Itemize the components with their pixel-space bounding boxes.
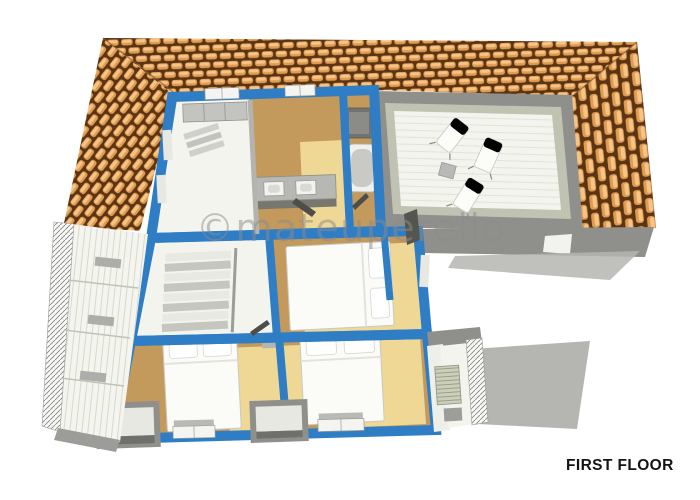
bed-b	[300, 333, 384, 425]
floor-label: FIRST FLOOR	[566, 457, 674, 474]
crate	[444, 408, 463, 422]
shower	[345, 108, 373, 138]
bed-a	[163, 336, 242, 432]
window	[162, 130, 173, 160]
bed-middle	[286, 241, 394, 330]
window	[419, 255, 430, 287]
right-balcony	[427, 327, 488, 432]
fascia-highlight	[543, 234, 572, 254]
window	[156, 175, 166, 203]
bay-box	[249, 399, 308, 443]
closet-wardrobe-row	[183, 102, 248, 122]
watermark-text: ©mateuperello	[196, 206, 506, 250]
shutter	[435, 365, 462, 405]
scene-svg: ©mateuperello FIRST FLOOR	[0, 0, 700, 500]
floor-plan-render: ©mateuperello FIRST FLOOR	[0, 0, 700, 500]
